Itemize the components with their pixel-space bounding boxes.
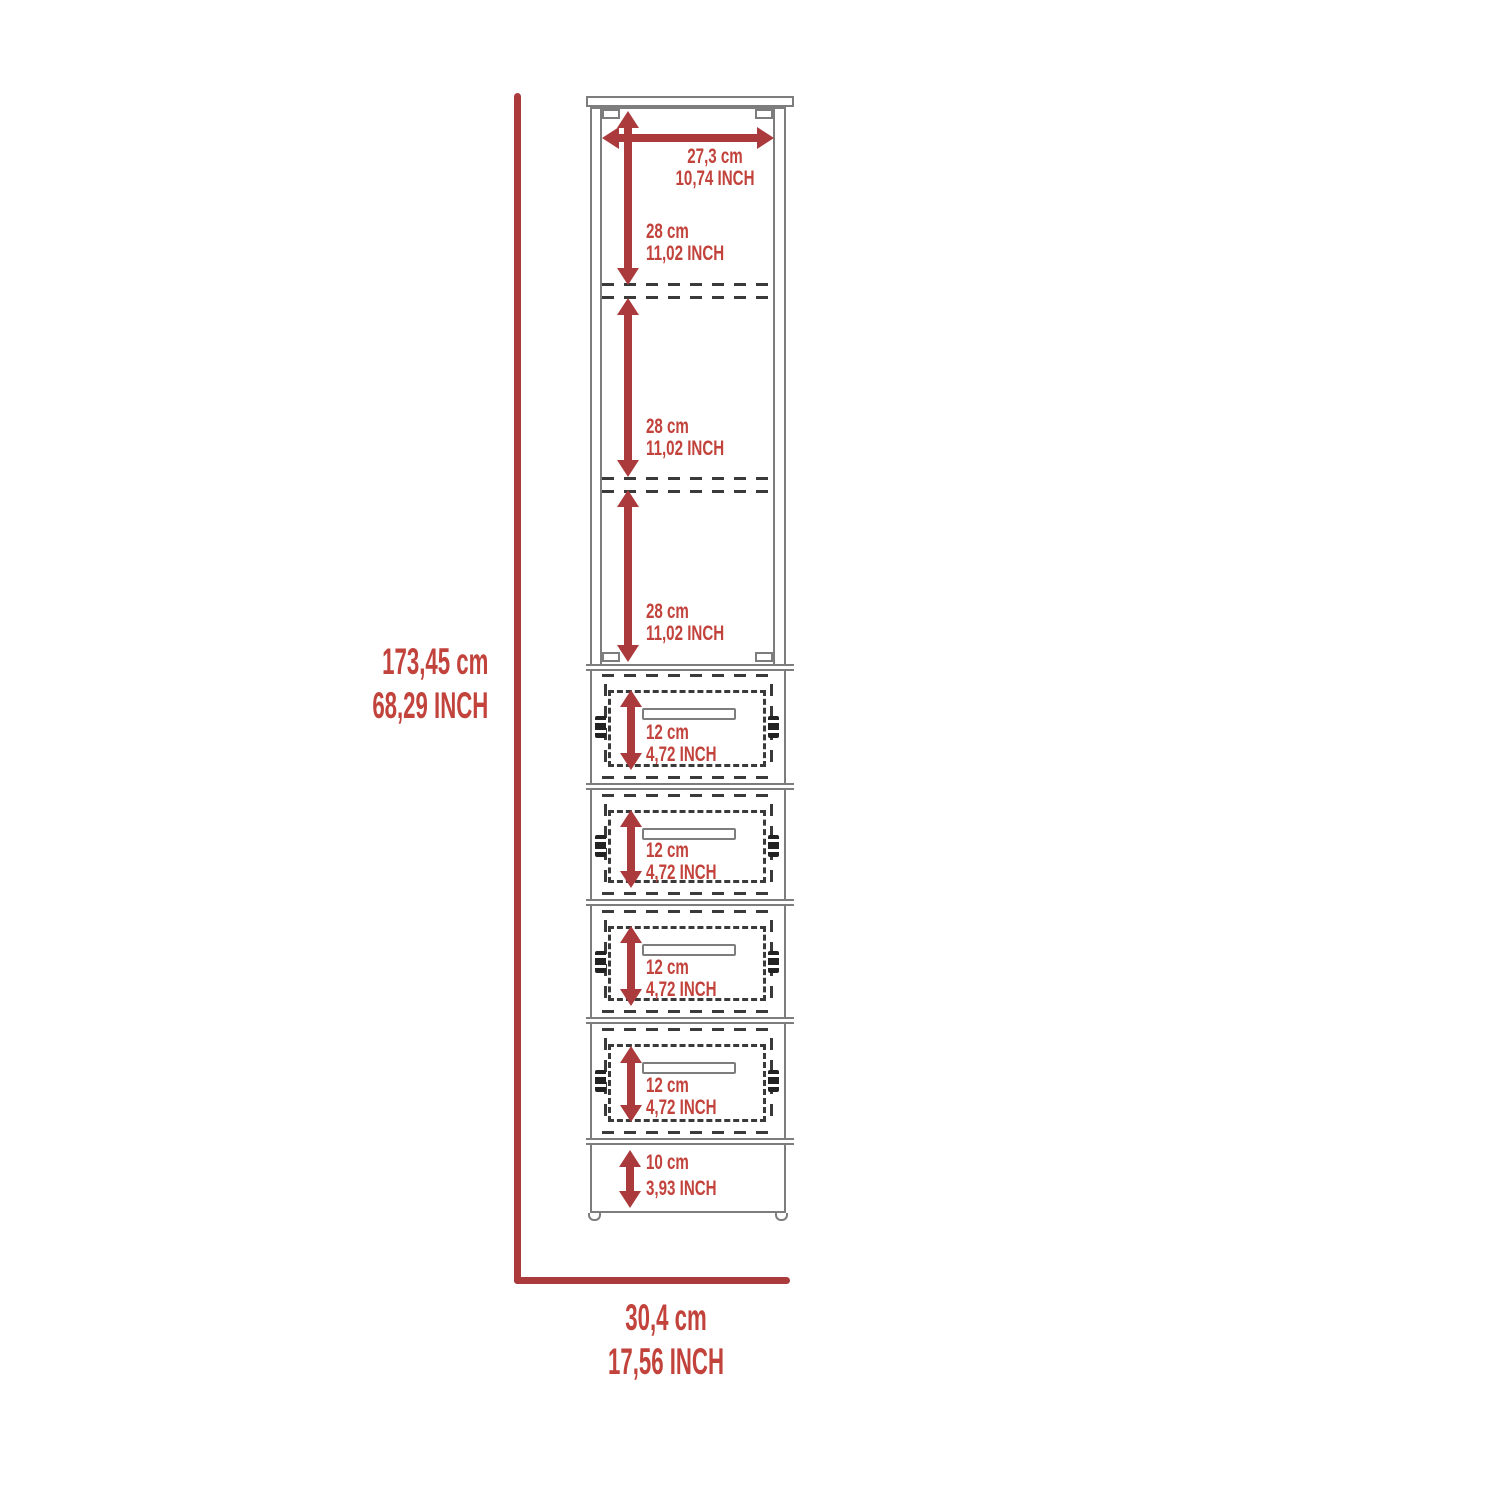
- shelf-2-dimension-label: 28 cm 11,02 INCH: [646, 416, 724, 460]
- overall-height-dimension-line: [514, 93, 521, 1284]
- drawer-1-height-arrow: [627, 707, 635, 753]
- section-divider: [586, 1138, 794, 1145]
- drawer-4-dimension-label: 12 cm 4,72 INCH: [646, 1075, 717, 1119]
- interior-width-cm: 27,3 cm: [643, 146, 787, 168]
- drawer-slide-icon: [768, 716, 779, 738]
- drawer-slide-icon: [768, 835, 779, 857]
- cabinet-top-panel: [586, 96, 794, 107]
- drawer-2-inch: 4,72 INCH: [646, 862, 717, 884]
- drawer-slide-icon: [595, 951, 606, 973]
- drawer-2-cm: 12 cm: [646, 840, 717, 862]
- overall-width-label: 30,4 cm 17,56 INCH: [606, 1296, 726, 1384]
- overall-width-dimension-line: [514, 1277, 790, 1284]
- base-dimension-label: 10 cm 3,93 INCH: [646, 1150, 717, 1202]
- section-divider: [586, 664, 794, 671]
- shelf-3-inch: 11,02 INCH: [646, 623, 724, 645]
- drawer-dash-line: [602, 892, 774, 895]
- drawer-dash-line: [602, 1028, 774, 1031]
- shelf-line: [602, 477, 774, 480]
- drawer-3-height-arrow: [627, 943, 635, 989]
- drawer-slide-icon: [768, 1070, 779, 1092]
- drawer-3-cm: 12 cm: [646, 957, 717, 979]
- overall-height-label: 173,45 cm 68,29 INCH: [372, 640, 488, 728]
- drawer-3-dimension-label: 12 cm 4,72 INCH: [646, 957, 717, 1001]
- cabinet-foot: [775, 1213, 788, 1221]
- shelf-2-cm: 28 cm: [646, 416, 724, 438]
- drawer-4-cm: 12 cm: [646, 1075, 717, 1097]
- shelf-2-height-arrow: [624, 315, 632, 460]
- left-inner-wall-line: [600, 107, 602, 664]
- interior-width-arrow: [619, 134, 757, 142]
- shelf-1-dimension-label: 28 cm 11,02 INCH: [646, 221, 724, 265]
- overall-width-inch: 17,56 INCH: [606, 1340, 726, 1384]
- drawer-slide-icon: [595, 1070, 606, 1092]
- drawer-2-height-arrow: [627, 827, 635, 871]
- drawer-dash-line: [602, 910, 774, 913]
- shelf-2-inch: 11,02 INCH: [646, 438, 724, 460]
- shelf-3-cm: 28 cm: [646, 601, 724, 623]
- drawer-2-dimension-label: 12 cm 4,72 INCH: [646, 840, 717, 884]
- base-cm: 10 cm: [646, 1150, 717, 1176]
- drawer-slide-icon: [595, 716, 606, 738]
- hinge-plate-icon: [755, 109, 773, 119]
- drawer-4-height-arrow: [627, 1063, 635, 1105]
- shelf-1-height-arrow: [624, 128, 632, 268]
- right-inner-wall-line: [773, 107, 775, 664]
- section-divider: [586, 783, 794, 790]
- drawer-handle: [642, 1062, 736, 1074]
- drawer-1-cm: 12 cm: [646, 722, 717, 744]
- drawer-dash-line: [602, 674, 774, 677]
- drawer-dash-line: [602, 1010, 774, 1013]
- drawer-dash-line: [602, 1131, 774, 1134]
- drawer-1-inch: 4,72 INCH: [646, 744, 717, 766]
- section-divider: [586, 899, 794, 906]
- overall-height-inch: 68,29 INCH: [372, 684, 488, 728]
- drawer-3-inch: 4,72 INCH: [646, 979, 717, 1001]
- shelf-3-dimension-label: 28 cm 11,02 INCH: [646, 601, 724, 645]
- section-divider: [586, 1017, 794, 1024]
- overall-height-cm: 173,45 cm: [372, 640, 488, 684]
- drawer-1-dimension-label: 12 cm 4,72 INCH: [646, 722, 717, 766]
- drawer-handle: [642, 944, 736, 956]
- drawer-dash-line: [602, 776, 774, 779]
- hinge-plate-icon: [755, 652, 773, 662]
- interior-width-inch: 10,74 INCH: [643, 168, 787, 190]
- shelf-3-height-arrow: [624, 507, 632, 645]
- drawer-dash-line: [602, 794, 774, 797]
- shelf-1-cm: 28 cm: [646, 221, 724, 243]
- drawer-4-inch: 4,72 INCH: [646, 1097, 717, 1119]
- overall-width-cm: 30,4 cm: [606, 1296, 726, 1340]
- drawer-slide-icon: [595, 835, 606, 857]
- base-inch: 3,93 INCH: [646, 1176, 717, 1202]
- interior-width-label: 27,3 cm 10,74 INCH: [643, 146, 787, 190]
- drawer-slide-icon: [768, 951, 779, 973]
- cabinet-dimension-diagram: 173,45 cm 68,29 INCH 30,4 cm 17,56 INCH …: [0, 0, 1503, 1503]
- shelf-1-inch: 11,02 INCH: [646, 243, 724, 265]
- cabinet-foot: [588, 1213, 601, 1221]
- base-height-arrow: [626, 1167, 634, 1191]
- drawer-handle: [642, 708, 736, 720]
